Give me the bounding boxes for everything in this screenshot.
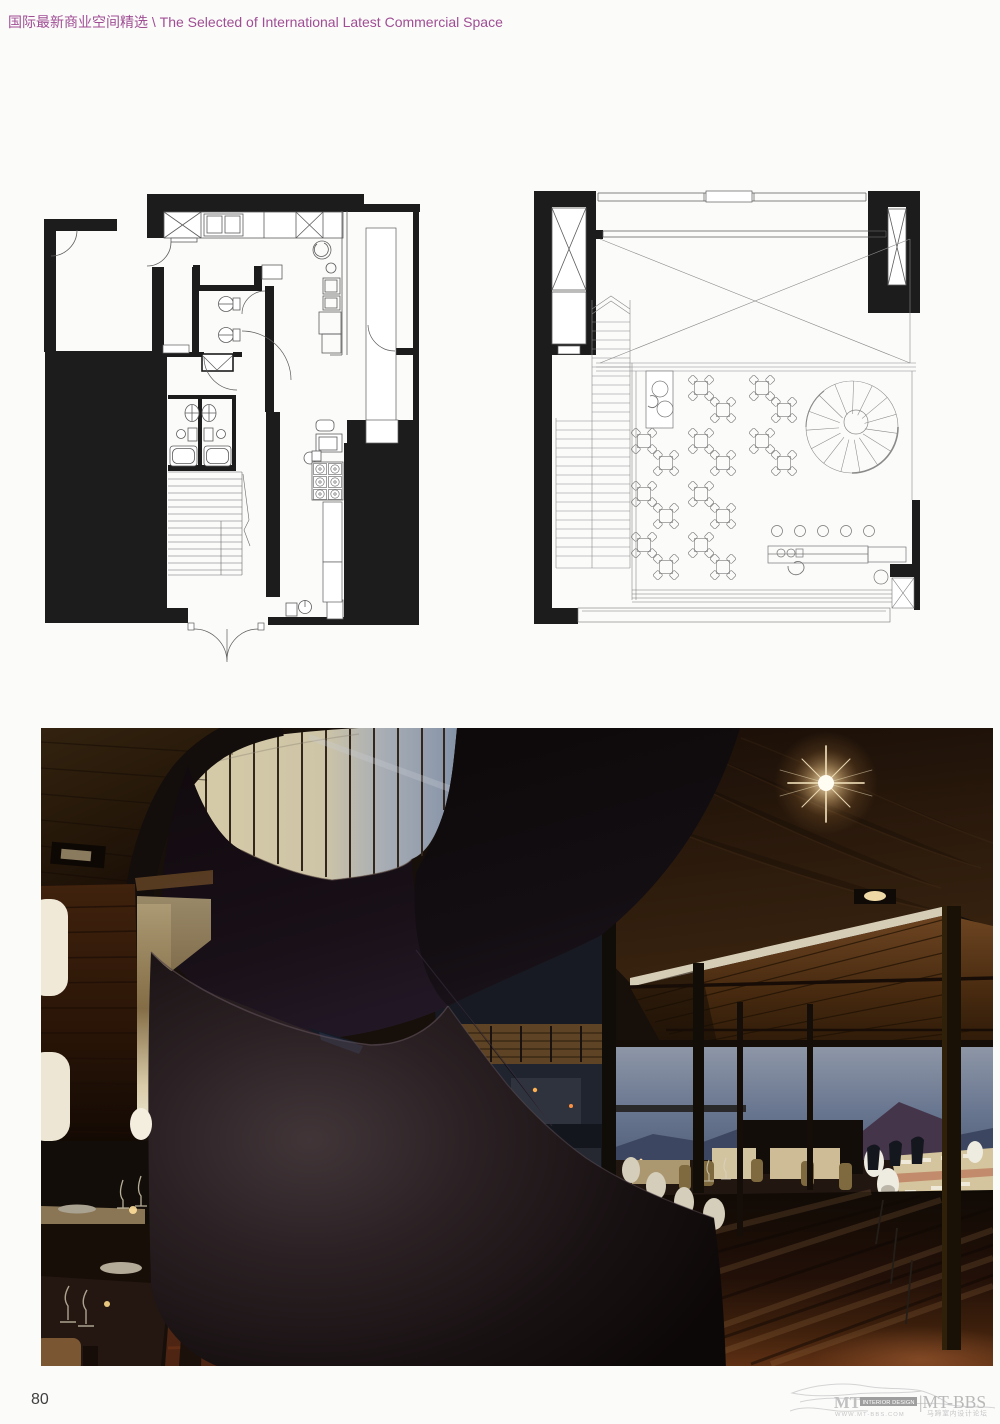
svg-text:|MT-BBS: |MT-BBS (919, 1392, 986, 1412)
svg-text:WWW.MT-BBS.COM: WWW.MT-BBS.COM (835, 1412, 905, 1418)
svg-text:INTERIOR DESIGN: INTERIOR DESIGN (863, 1400, 915, 1406)
svg-text:MT: MT (834, 1393, 861, 1412)
svg-text:马蹄室内设计论坛: 马蹄室内设计论坛 (927, 1409, 988, 1418)
